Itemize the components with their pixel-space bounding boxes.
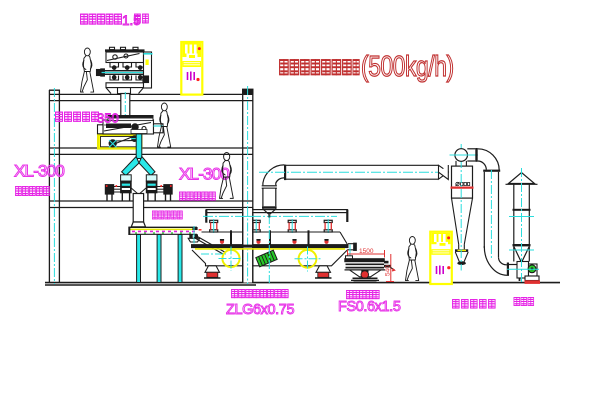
svg-text:ZLG6x0.75: ZLG6x0.75 [226,302,294,318]
svg-text:XL-300: XL-300 [14,162,64,181]
svg-text:1500: 1500 [359,248,374,255]
svg-text:1.5: 1.5 [122,13,141,28]
svg-text:540: 540 [385,265,392,276]
svg-text:(500kg/h): (500kg/h) [361,52,454,83]
svg-text:FS0.6x1.5: FS0.6x1.5 [338,299,401,315]
svg-text:350: 350 [97,111,119,126]
